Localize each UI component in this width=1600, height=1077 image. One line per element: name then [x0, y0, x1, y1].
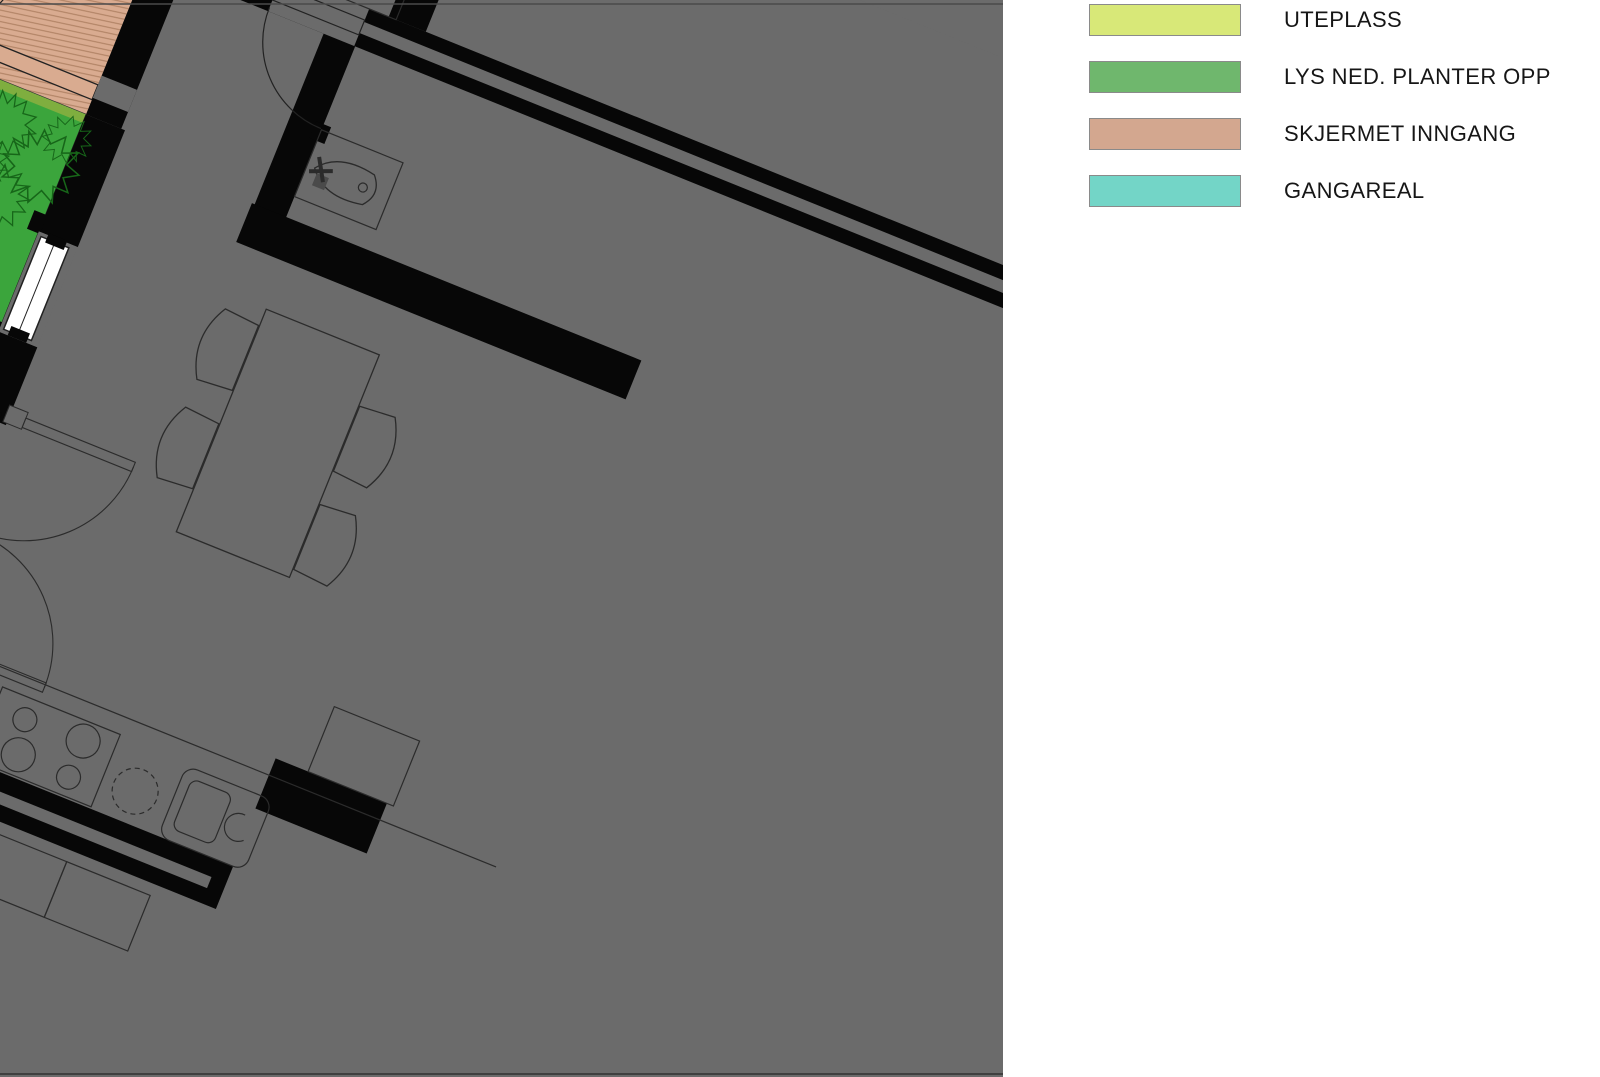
legend: UTEPLASS LYS NED. PLANTER OPP SKJERMET I… — [1089, 4, 1551, 232]
legend-label-skjermet-inngang: SKJERMET INNGANG — [1284, 118, 1516, 149]
legend-item-skjermet-inngang: SKJERMET INNGANG — [1089, 118, 1551, 149]
floor-plan-svg — [0, 0, 1003, 1077]
floor-plan-page: UTEPLASS LYS NED. PLANTER OPP SKJERMET I… — [0, 0, 1600, 1077]
legend-item-uteplass: UTEPLASS — [1089, 4, 1551, 35]
legend-swatch-gangareal — [1089, 175, 1241, 207]
legend-item-gangareal: GANGAREAL — [1089, 175, 1551, 206]
interior-floor — [0, 0, 1003, 1077]
legend-label-gangareal: GANGAREAL — [1284, 175, 1425, 206]
legend-swatch-uteplass — [1089, 4, 1241, 36]
legend-label-lys-ned-planter-opp: LYS NED. PLANTER OPP — [1284, 61, 1551, 92]
floor-plan-drawing — [0, 0, 1003, 1077]
legend-swatch-lys-ned-planter-opp — [1089, 61, 1241, 93]
legend-label-uteplass: UTEPLASS — [1284, 4, 1402, 35]
legend-swatch-skjermet-inngang — [1089, 118, 1241, 150]
legend-item-lys-ned-planter-opp: LYS NED. PLANTER OPP — [1089, 61, 1551, 92]
